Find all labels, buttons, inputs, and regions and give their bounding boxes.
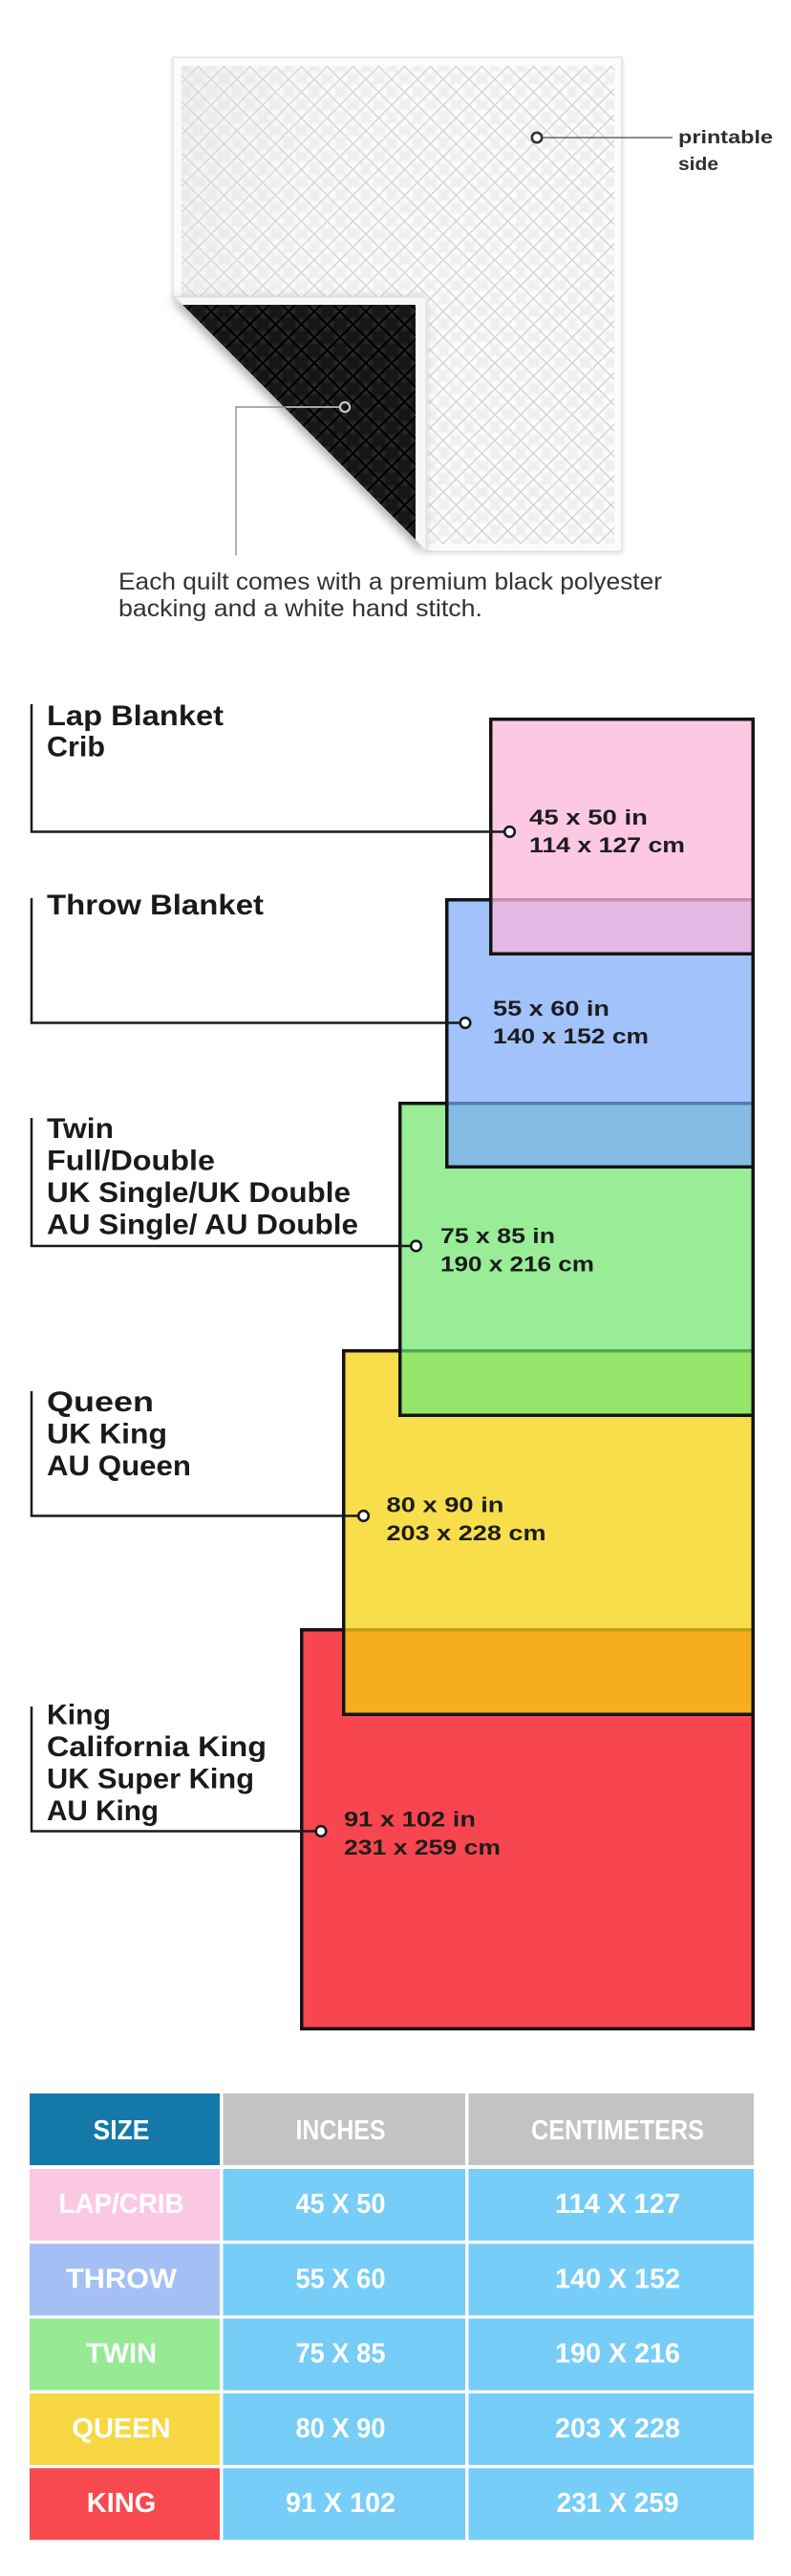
- svg-text:140 X 152: 140 X 152: [555, 2264, 680, 2294]
- svg-text:printable: printable: [678, 127, 773, 148]
- svg-text:AU King: AU King: [47, 1795, 159, 1827]
- svg-text:QUEEN: QUEEN: [72, 2414, 170, 2444]
- svg-text:203 X 228: 203 X 228: [555, 2414, 680, 2444]
- svg-text:AU Single/ AU Double: AU Single/ AU Double: [47, 1210, 358, 1241]
- svg-text:Queen: Queen: [47, 1386, 154, 1418]
- svg-text:140 x 152 cm: 140 x 152 cm: [493, 1024, 649, 1048]
- svg-text:UK King: UK King: [47, 1419, 167, 1450]
- svg-text:CENTIMETERS: CENTIMETERS: [531, 2115, 704, 2146]
- svg-text:Throw Blanket: Throw Blanket: [47, 890, 264, 921]
- svg-text:75 x 85 in: 75 x 85 in: [440, 1224, 555, 1248]
- svg-text:75 X 85: 75 X 85: [296, 2339, 386, 2370]
- svg-text:114 X 127: 114 X 127: [555, 2189, 680, 2220]
- svg-text:231 X 259: 231 X 259: [557, 2488, 679, 2519]
- svg-text:THROW: THROW: [66, 2264, 178, 2294]
- svg-text:114 x 127 cm: 114 x 127 cm: [529, 833, 685, 857]
- svg-text:KING: KING: [87, 2488, 157, 2519]
- svg-text:190 X 216: 190 X 216: [555, 2339, 680, 2370]
- svg-text:55 x 60 in: 55 x 60 in: [493, 997, 609, 1020]
- svg-text:backing and a white hand stitc: backing and a white hand stitch.: [118, 595, 482, 622]
- svg-text:Each quilt comes with a premiu: Each quilt comes with a premium black po…: [118, 569, 662, 595]
- svg-text:Crib: Crib: [47, 732, 105, 763]
- svg-text:Full/Double: Full/Double: [47, 1146, 215, 1177]
- svg-text:80 x 90 in: 80 x 90 in: [387, 1493, 504, 1517]
- svg-text:203 x 228 cm: 203 x 228 cm: [387, 1521, 546, 1545]
- svg-text:AU Queen: AU Queen: [47, 1450, 191, 1482]
- svg-text:91 x 102 in: 91 x 102 in: [344, 1808, 476, 1832]
- svg-text:45 X 50: 45 X 50: [296, 2189, 386, 2220]
- svg-text:California King: California King: [47, 1731, 267, 1763]
- svg-text:UK Super King: UK Super King: [47, 1764, 254, 1795]
- svg-text:side: side: [678, 154, 718, 175]
- svg-text:SIZE: SIZE: [94, 2115, 150, 2146]
- svg-text:UK Single/UK Double: UK Single/UK Double: [47, 1177, 351, 1209]
- svg-text:45 x 50 in: 45 x 50 in: [529, 805, 648, 829]
- svg-text:231 x 259 cm: 231 x 259 cm: [344, 1835, 501, 1859]
- svg-text:80 X 90: 80 X 90: [296, 2414, 386, 2444]
- svg-text:Twin: Twin: [47, 1113, 114, 1145]
- svg-text:190 x 216 cm: 190 x 216 cm: [440, 1253, 594, 1277]
- svg-text:55 X 60: 55 X 60: [296, 2264, 386, 2294]
- svg-text:INCHES: INCHES: [296, 2115, 386, 2146]
- svg-text:91 X 102: 91 X 102: [286, 2488, 395, 2519]
- svg-text:Lap Blanket: Lap Blanket: [47, 700, 224, 732]
- svg-text:King: King: [47, 1700, 111, 1731]
- svg-text:LAP/CRIB: LAP/CRIB: [59, 2189, 184, 2220]
- svg-text:TWIN: TWIN: [86, 2339, 157, 2370]
